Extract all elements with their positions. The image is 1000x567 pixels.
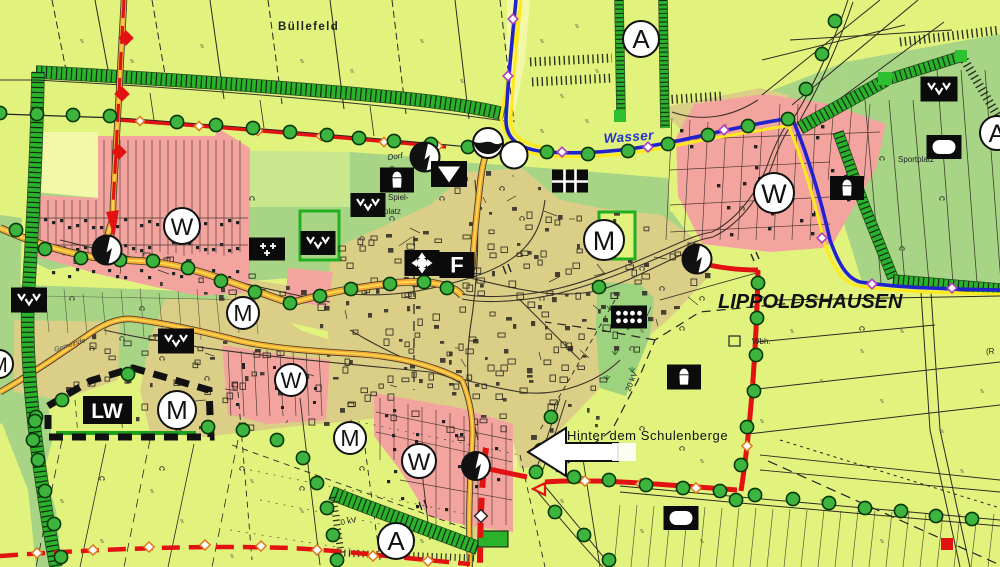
svg-text:M: M [0, 354, 8, 377]
svg-text:M: M [593, 226, 616, 256]
svg-text:M: M [166, 395, 188, 425]
svg-text:M: M [340, 425, 359, 451]
svg-text:A: A [387, 526, 405, 556]
svg-text:LW: LW [91, 400, 123, 423]
svg-text:A: A [989, 120, 1000, 148]
svg-text:W: W [281, 368, 302, 393]
svg-text:Sportplatz: Sportplatz [898, 155, 934, 164]
svg-text:Hinter dem Schulenberge: Hinter dem Schulenberge [567, 428, 728, 443]
svg-text:A: A [632, 24, 650, 54]
svg-text:Spiel-: Spiel- [388, 193, 409, 202]
svg-text:W: W [408, 449, 431, 476]
svg-text:(R: (R [986, 347, 995, 356]
svg-text:W: W [761, 179, 787, 209]
svg-text:LIPPOLDSHAUSEN: LIPPOLDSHAUSEN [718, 291, 903, 313]
svg-text:Wbh.: Wbh. [752, 337, 771, 346]
svg-text:M: M [233, 300, 252, 326]
svg-text:F: F [450, 253, 463, 278]
svg-text:W: W [171, 214, 194, 241]
svg-text:platz: platz [384, 207, 401, 216]
svg-text:Büllefeld: Büllefeld [278, 21, 339, 33]
